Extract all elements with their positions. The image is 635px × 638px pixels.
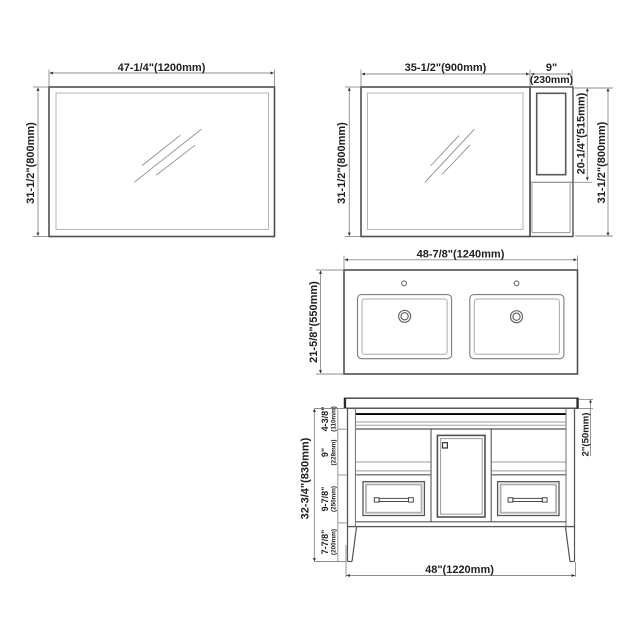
svg-text:20-1/4"(515mm): 20-1/4"(515mm) <box>576 92 588 174</box>
svg-text:47-1/4"(1200mm): 47-1/4"(1200mm) <box>118 62 206 74</box>
svg-text:(110mm): (110mm) <box>330 406 337 432</box>
svg-text:35-1/2"(900mm): 35-1/2"(900mm) <box>405 62 487 74</box>
svg-text:48-7/8"(1240mm): 48-7/8"(1240mm) <box>417 248 505 260</box>
svg-text:(228mm): (228mm) <box>330 440 337 466</box>
svg-text:31-1/2"(800mm): 31-1/2"(800mm) <box>596 121 608 203</box>
svg-text:7-7/8": 7-7/8" <box>320 530 330 555</box>
svg-text:(250mm): (250mm) <box>330 486 337 512</box>
svg-text:(200mm): (200mm) <box>330 529 337 555</box>
svg-text:31-1/2"(800mm): 31-1/2"(800mm) <box>336 122 348 204</box>
svg-text:(230mm): (230mm) <box>530 74 573 86</box>
svg-text:2"(50mm): 2"(50mm) <box>580 412 591 456</box>
svg-text:31-1/2"(800mm): 31-1/2"(800mm) <box>25 122 37 204</box>
svg-text:9": 9" <box>546 62 557 74</box>
svg-text:9": 9" <box>320 448 330 457</box>
svg-text:21-5/8"(550mm): 21-5/8"(550mm) <box>308 281 320 363</box>
svg-text:9-7/8": 9-7/8" <box>320 487 330 512</box>
svg-text:48"(1220mm): 48"(1220mm) <box>425 564 494 576</box>
svg-text:4-3/8": 4-3/8" <box>320 407 330 432</box>
svg-text:32-3/4"(830mm): 32-3/4"(830mm) <box>300 437 312 519</box>
